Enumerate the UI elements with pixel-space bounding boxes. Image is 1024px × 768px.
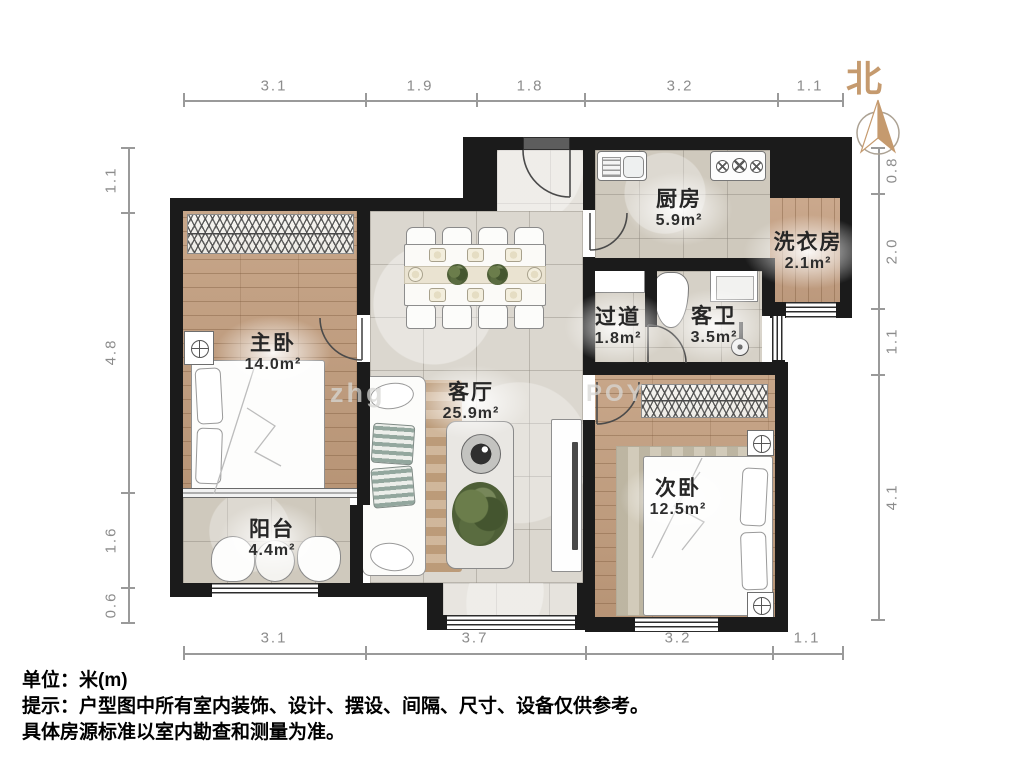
dining-plate (527, 267, 542, 282)
dimension-label-right: 0.8 (884, 157, 901, 184)
room-label-guest-bathroom: 客卫3.5m² (661, 289, 768, 363)
dimension-label-left: 0.6 (103, 592, 120, 619)
dining-plant-icon (487, 264, 508, 285)
wall-segment (577, 583, 595, 630)
dimension-label-top: 1.8 (517, 78, 544, 95)
dimension-label-bottom: 3.7 (462, 630, 489, 647)
tv (572, 442, 578, 550)
dining-plate (505, 248, 522, 262)
wall-segment (357, 583, 427, 597)
dimension-label-bottom: 3.1 (261, 630, 288, 647)
ruler-tick (772, 646, 774, 660)
wall-segment (357, 211, 370, 315)
ruler-line-left (128, 147, 130, 622)
dimension-label-top: 3.2 (667, 78, 694, 95)
wall-segment (497, 137, 523, 150)
floorplan-canvas: 主卧14.0m²阳台4.4m²客厅25.9m²厨房5.9m²洗衣房2.1m²过道… (0, 0, 1024, 768)
drainboard-icon (602, 157, 621, 177)
room-label-living-room: 客厅25.9m² (413, 365, 530, 439)
room-area: 2.1m² (774, 255, 843, 273)
dining-table-runner (404, 266, 546, 284)
ruler-tick (121, 212, 135, 214)
room-area: 12.5m² (650, 501, 707, 519)
second-bedroom-wardrobe (641, 384, 768, 418)
master-wardrobe (187, 214, 354, 254)
ruler-tick (183, 93, 185, 107)
dimension-label-left: 1.1 (103, 167, 120, 194)
wall-segment (838, 302, 852, 318)
ruler-tick (183, 646, 185, 660)
ruler-tick (871, 374, 885, 376)
ruler-tick (121, 147, 135, 149)
ruler-tick (871, 193, 885, 195)
radiator-crosshair-icon (753, 597, 771, 615)
ruler-tick (584, 93, 586, 107)
second-bedroom-radiator (747, 592, 774, 618)
burner-icon (750, 160, 763, 173)
ruler-tick (121, 622, 135, 624)
dining-plate (505, 288, 522, 302)
wall-segment (583, 150, 595, 210)
bathroom-window (772, 314, 785, 362)
wall-segment (775, 375, 788, 632)
radiator-crosshair-icon (191, 340, 209, 358)
second-bedroom-window (633, 617, 720, 632)
balcony-sliding-door (183, 488, 357, 498)
dining-plate (467, 248, 484, 262)
compass-north-icon (845, 92, 915, 182)
dining-chair (442, 303, 472, 329)
room-name: 阳台 (249, 518, 296, 542)
ruler-tick (365, 93, 367, 107)
ruler-tick (871, 619, 885, 621)
dining-plant-icon (447, 264, 468, 285)
room-label-hallway: 过道1.8m² (565, 290, 672, 364)
note-standard: 具体房源标准以室内勘查和测量为准。 (22, 720, 649, 746)
lounge-chair (371, 423, 416, 466)
master-bed-pillow (195, 428, 223, 485)
room-label-laundry-room: 洗衣房2.1m² (744, 215, 873, 289)
room-entry-floor (497, 150, 583, 211)
room-area: 4.4m² (249, 542, 296, 560)
room-name: 次卧 (650, 477, 707, 501)
wall-segment (770, 137, 852, 198)
ruler-tick (871, 147, 885, 149)
dining-chair (478, 303, 508, 329)
room-name: 客卫 (691, 305, 738, 329)
room-name: 主卧 (245, 332, 302, 356)
lounge-chair (370, 465, 415, 509)
room-living-bay-floor (443, 583, 577, 615)
wall-segment (583, 420, 595, 583)
second-bedroom-radiator (747, 430, 774, 456)
room-name: 客厅 (443, 381, 500, 405)
ruler-tick (121, 492, 135, 494)
room-area: 25.9m² (443, 405, 500, 423)
ruler-tick (842, 646, 844, 660)
room-area: 1.8m² (595, 330, 642, 348)
dining-chair (514, 303, 544, 329)
entrance-door (523, 137, 570, 150)
coffee-table-plant-icon (452, 482, 508, 546)
ruler-tick (842, 93, 844, 107)
dining-plate (429, 288, 446, 302)
dimension-label-bottom: 1.1 (794, 630, 821, 647)
ruler-line-top (183, 100, 842, 102)
dining-chair (406, 303, 436, 329)
wall-segment (170, 198, 183, 597)
dimension-label-top: 1.9 (407, 78, 434, 95)
wall-segment (427, 583, 443, 630)
room-label-second-bedroom: 次卧12.5m² (620, 461, 737, 535)
dimension-label-top: 1.1 (797, 78, 824, 95)
coffee-table-tray (461, 434, 501, 474)
disclaimer-notes: 单位：米(m) 提示：户型图中所有室内装饰、设计、摆设、间隔、尺寸、设备仅供参考… (22, 668, 649, 746)
wall-segment (720, 617, 788, 632)
dimension-label-left: 4.8 (103, 339, 120, 366)
ruler-tick (121, 587, 135, 589)
burner-icon (732, 158, 747, 173)
room-name: 厨房 (656, 188, 703, 212)
room-area: 5.9m² (656, 212, 703, 230)
room-name: 过道 (595, 306, 642, 330)
dimension-label-left: 1.6 (103, 527, 120, 554)
room-name: 洗衣房 (774, 231, 843, 255)
ruler-tick (585, 646, 587, 660)
wall-segment (357, 362, 370, 505)
laundry-window (784, 302, 838, 318)
dining-plate (408, 267, 423, 282)
dimension-label-bottom: 3.2 (665, 630, 692, 647)
note-unit: 单位：米(m) (22, 668, 649, 694)
ruler-line-bottom (183, 653, 842, 655)
wall-segment (350, 505, 363, 597)
dimension-label-top: 3.1 (261, 78, 288, 95)
second-bed-pillow (740, 467, 769, 526)
second-bed-pillow (740, 532, 768, 591)
ruler-tick (476, 93, 478, 107)
living-bay-window (445, 615, 577, 630)
room-area: 3.5m² (691, 329, 738, 347)
plan-detail (861, 100, 878, 152)
wall-segment (170, 198, 477, 211)
ruler-tick (777, 93, 779, 107)
dimension-label-right: 4.1 (884, 484, 901, 511)
room-area: 14.0m² (245, 356, 302, 374)
dining-plate (467, 288, 484, 302)
dimension-label-right: 2.0 (884, 238, 901, 265)
ruler-tick (871, 308, 885, 310)
balcony-window (210, 583, 320, 597)
room-label-balcony: 阳台4.4m² (219, 502, 326, 576)
note-tip: 提示：户型图中所有室内装饰、设计、摆设、间隔、尺寸、设备仅供参考。 (22, 694, 649, 720)
radiator-crosshair-icon (753, 435, 771, 453)
wall-segment (463, 137, 497, 211)
master-radiator (184, 331, 214, 365)
room-label-master-bedroom: 主卧14.0m² (215, 316, 332, 390)
ruler-tick (365, 646, 367, 660)
dimension-label-right: 1.1 (884, 328, 901, 355)
north-label: 北 (846, 50, 882, 102)
ruler-line-right (878, 147, 880, 619)
plan-detail (878, 100, 895, 152)
room-label-kitchen: 厨房5.9m² (626, 172, 733, 246)
dining-plate (429, 248, 446, 262)
wall-segment (570, 137, 772, 150)
